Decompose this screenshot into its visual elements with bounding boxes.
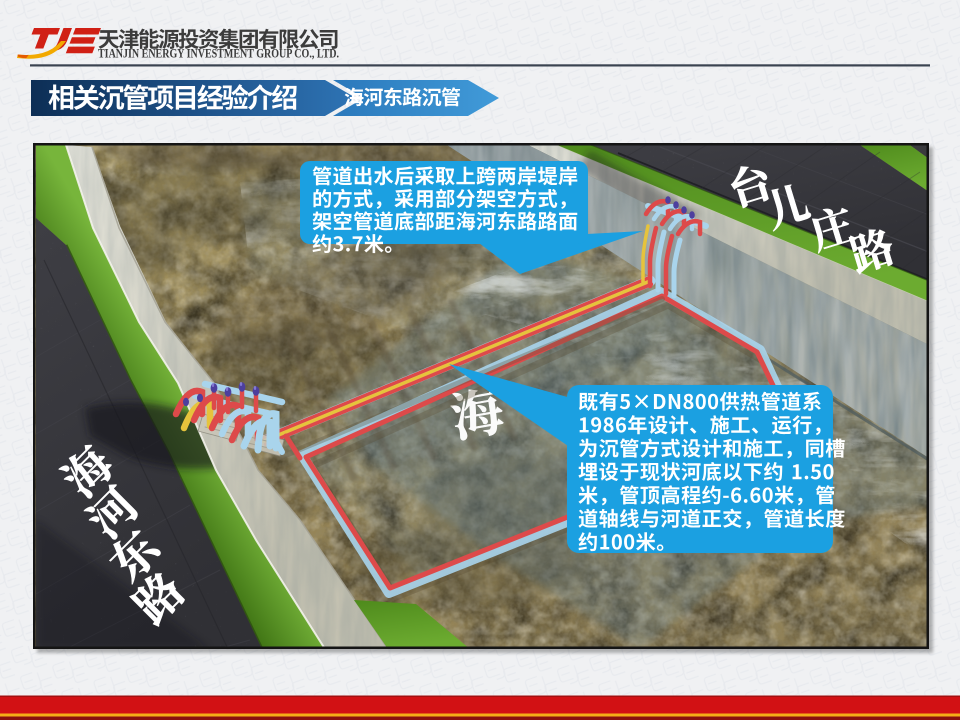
svg-text:TIANJIN ENERGY INVESTMENT GROU: TIANJIN ENERGY INVESTMENT GROUP CO., LTD… [98, 47, 339, 61]
